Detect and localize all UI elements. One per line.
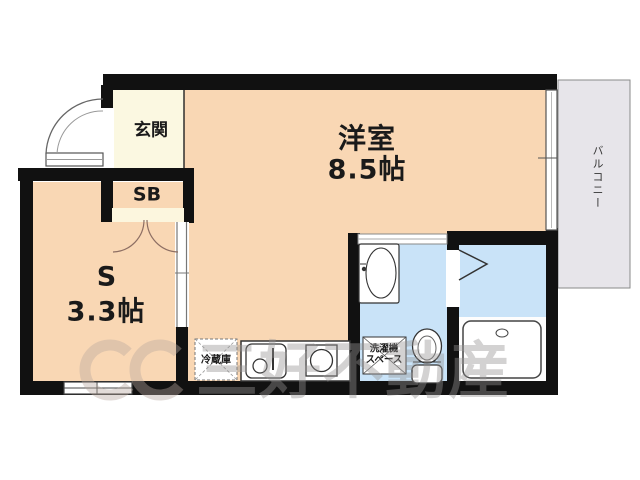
genkan-label: 玄関 (134, 123, 168, 140)
toilet-bowl (413, 329, 442, 363)
vanity-faucet (362, 267, 366, 271)
vanity-sink (359, 244, 399, 303)
wall-entry-jamb (101, 85, 113, 108)
western-room-label: 洋室 (338, 125, 396, 153)
wall-sb-left (101, 168, 113, 222)
wall-sb-right (183, 168, 194, 223)
bathroom-floor (459, 243, 546, 317)
balcony-label: バルコニー (585, 145, 605, 235)
wall-right-lower (546, 228, 558, 390)
service-room-size: 3.3帖 (67, 299, 146, 326)
service-room-label: S (97, 264, 117, 291)
washer-space-label-line1: 洗濯機 (370, 344, 399, 354)
vanity-basin (366, 248, 396, 298)
floorplan-drawing (0, 0, 640, 480)
entrance-door-arc (46, 99, 103, 154)
toilet-tank (412, 365, 442, 383)
bathtub (463, 321, 541, 378)
floorplan-image: 玄関 SB 洋室 8.5帖 S 3.3帖 バルコニー 冷蔵庫 洗濯機 スペース … (0, 0, 640, 480)
shoe-box-label: SB (133, 186, 161, 205)
closet-floor (112, 208, 184, 222)
toilet (412, 329, 442, 383)
wall-left (20, 168, 33, 395)
refrigerator-label: 冷蔵庫 (201, 356, 231, 366)
bath-door-opening (446, 250, 460, 307)
washer-space-label-line2: スペース (366, 355, 403, 365)
wall-bath-top (447, 231, 558, 245)
kitchen-sink (246, 344, 286, 378)
wall-top (103, 74, 557, 90)
western-room-size: 8.5帖 (328, 157, 407, 184)
wall-service-right (176, 327, 188, 381)
